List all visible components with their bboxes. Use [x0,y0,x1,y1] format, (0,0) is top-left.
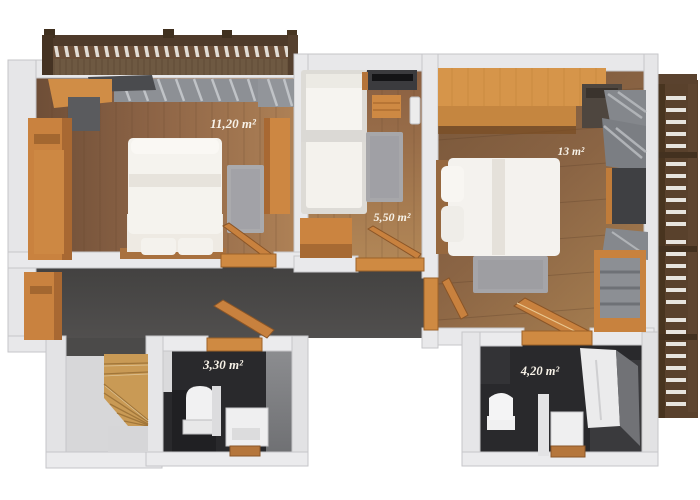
svg-text:13 m²: 13 m² [558,146,585,158]
svg-text:5,50 m²: 5,50 m² [374,210,411,224]
svg-text:4,20 m²: 4,20 m² [520,364,560,378]
svg-text:11,20 m²: 11,20 m² [210,116,257,131]
svg-text:3,30 m²: 3,30 m² [202,357,244,372]
